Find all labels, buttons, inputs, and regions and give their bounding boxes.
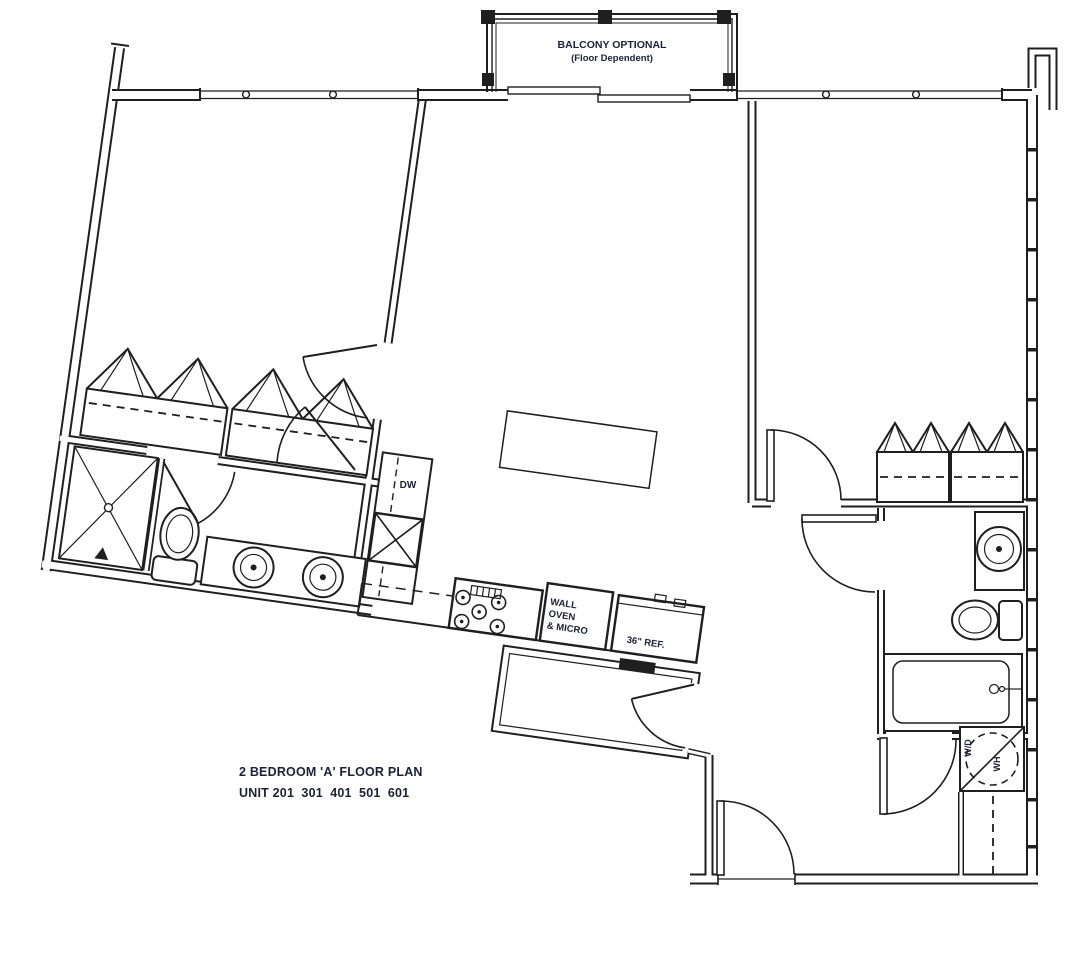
entry-door: [717, 801, 794, 875]
double-vanity-icon: [201, 537, 366, 607]
plan-title: 2 BEDROOM 'A' FLOOR PLAN: [239, 765, 423, 779]
pantry-door: [632, 676, 695, 707]
window-mullion-icon: [243, 91, 250, 98]
plan-units: UNIT 201 301 401 501 601: [239, 786, 409, 800]
toilet-icon: [151, 505, 205, 585]
windows: [200, 87, 1002, 102]
washer-dryer-label: W/D: [963, 739, 973, 757]
wall-oven-icon: WALL OVEN & MICRO: [540, 583, 613, 650]
laundry-closet-door: [880, 738, 956, 814]
dishwasher-label: DW: [400, 480, 417, 491]
master-suite-wing: [37, 44, 483, 622]
window-mullion-icon: [330, 91, 337, 98]
laundry-closet: W/D WH: [960, 727, 1024, 874]
balcony-label-1: BALCONY OPTIONAL: [558, 39, 667, 51]
title-block: 2 BEDROOM 'A' FLOOR PLAN UNIT 201 301 40…: [239, 765, 423, 800]
cooktop-icon: [449, 578, 543, 640]
bathroom2: [884, 512, 1024, 731]
bathtub-icon: [884, 654, 1022, 731]
floor-plan-canvas: WALL OVEN & MICRO 36" REF.: [0, 0, 1082, 960]
bedroom2-door: [767, 430, 841, 501]
window-mullion-icon: [913, 91, 920, 98]
balcony: BALCONY OPTIONAL (Floor Dependent): [481, 10, 737, 92]
balcony-label-2: (Floor Dependent): [571, 53, 653, 64]
bifold-doors-icon: [877, 423, 1023, 452]
sliding-door-panel: [598, 95, 690, 102]
floor-plan-page: WALL OVEN & MICRO 36" REF.: [0, 0, 1082, 960]
refrigerator-icon: 36" REF.: [611, 589, 705, 662]
water-heater-label: WH: [992, 757, 1002, 772]
kitchen-island: [499, 411, 656, 488]
bedroom2-closet: [877, 423, 1023, 502]
bathroom2-door: [802, 515, 876, 592]
toilet-icon: [952, 601, 1022, 641]
window-mullion-icon: [823, 91, 830, 98]
sliding-door-panel: [508, 87, 600, 94]
shower-icon: [59, 446, 158, 570]
vanity-sink-icon: [975, 512, 1024, 590]
